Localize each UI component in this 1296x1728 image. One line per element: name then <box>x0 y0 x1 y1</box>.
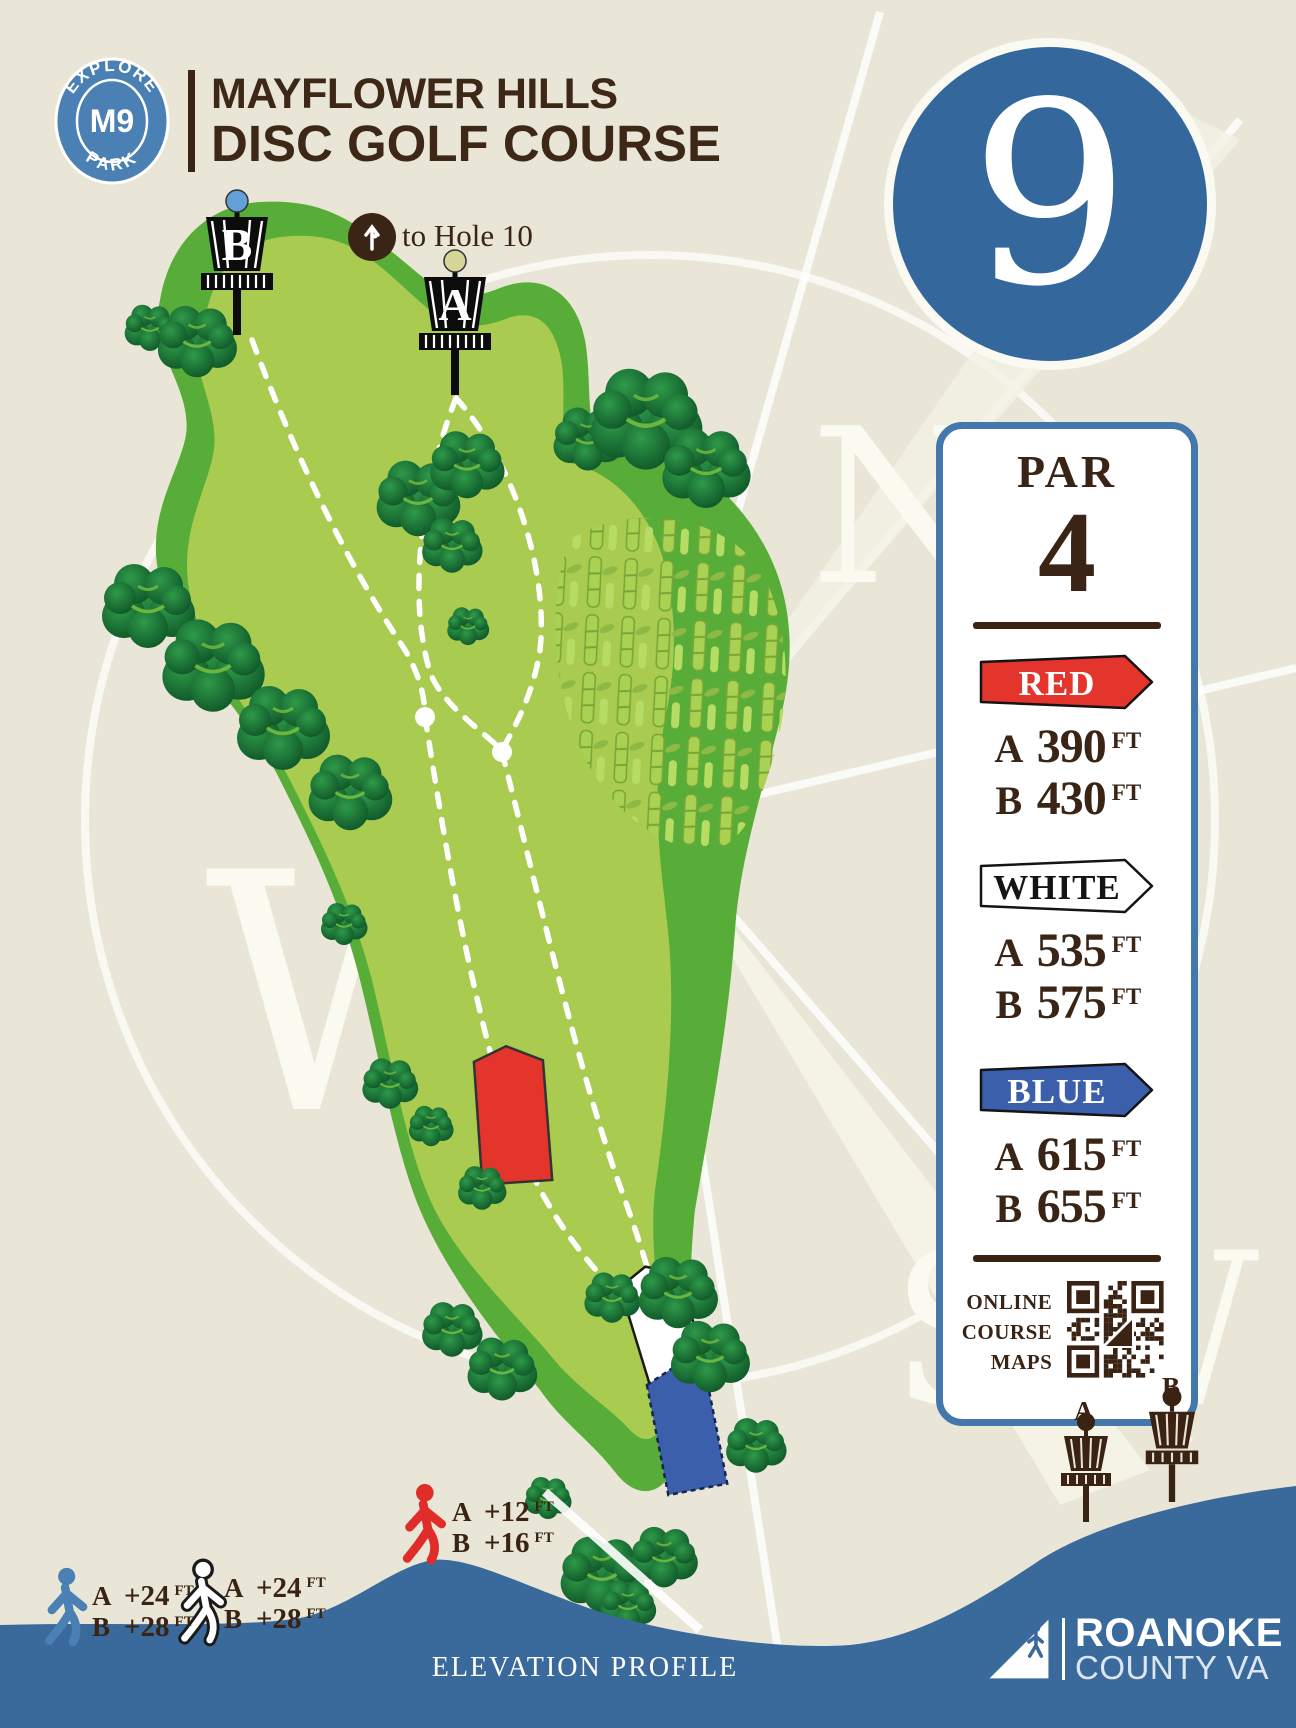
unit: FT <box>175 1614 194 1631</box>
elevation-gain: +28 <box>256 1603 302 1636</box>
elevation-gain: +28 <box>124 1611 170 1644</box>
elevation-basket-a-letter: A <box>1074 1396 1094 1427</box>
elevation-label-blue: A+24FT B+28FT <box>92 1580 194 1642</box>
unit: FT <box>535 1499 554 1516</box>
elevation-gain: +24 <box>124 1580 170 1613</box>
elevation-gain: +16 <box>484 1527 530 1560</box>
course-map-poster: N W SW <box>0 0 1296 1728</box>
elevation-basket-a <box>1061 1413 1111 1522</box>
tee-position: B <box>224 1604 246 1635</box>
elevation-label-red: A+12FT B+16FT <box>452 1496 554 1558</box>
elevation-label-white: A+24FT B+28FT <box>224 1572 326 1634</box>
tee-position: B <box>452 1528 474 1559</box>
unit: FT <box>535 1530 554 1547</box>
unit: FT <box>307 1606 326 1623</box>
walker-red <box>407 1484 441 1560</box>
elevation-profile-title: ELEVATION PROFILE <box>400 1652 770 1684</box>
elevation-basket-b <box>1146 1388 1199 1502</box>
unit: FT <box>175 1583 194 1600</box>
brand-divider <box>1062 1618 1065 1680</box>
elevation-profile <box>0 0 1296 1728</box>
elevation-basket-b-letter: B <box>1162 1372 1180 1403</box>
tee-position: B <box>92 1612 114 1643</box>
mountain-icon <box>986 1614 1052 1684</box>
tee-position: A <box>224 1573 246 1604</box>
unit: FT <box>307 1575 326 1592</box>
elevation-gain: +12 <box>484 1496 530 1529</box>
tee-position: A <box>92 1581 114 1612</box>
brand-name: ROANOKE <box>1075 1614 1283 1652</box>
elevation-gain: +24 <box>256 1572 302 1605</box>
elevation-terrain <box>0 1486 1296 1728</box>
county-brand: ROANOKE COUNTY VA <box>986 1614 1283 1684</box>
brand-region: COUNTY VA <box>1075 1652 1283 1683</box>
tee-position: A <box>452 1497 474 1528</box>
